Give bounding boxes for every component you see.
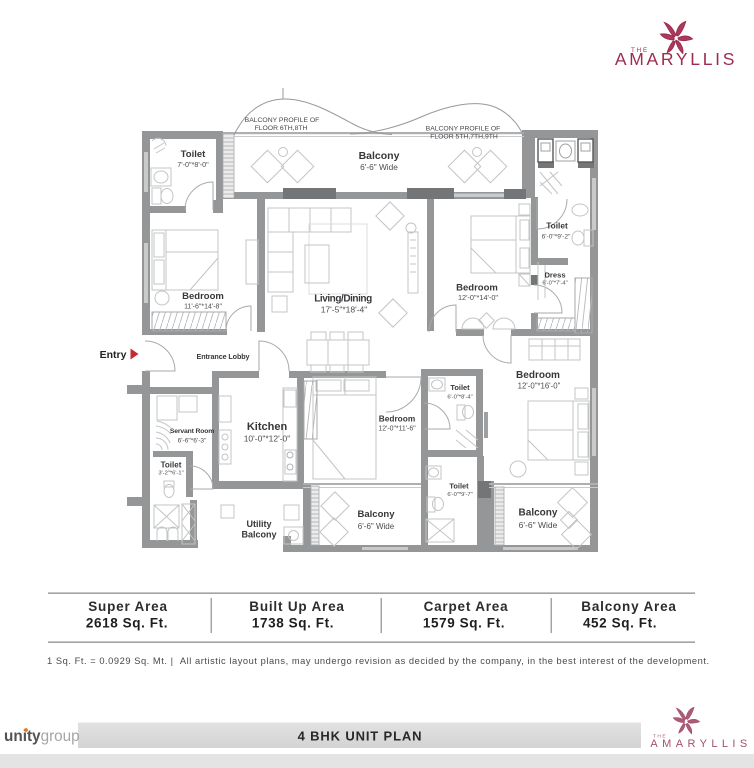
svg-text:Entry: Entry bbox=[100, 349, 127, 361]
svg-text:6'-0"*8'-4": 6'-0"*8'-4" bbox=[447, 395, 472, 401]
svg-text:Built Up Area: Built Up Area bbox=[249, 599, 344, 614]
svg-text:Living/Dining: Living/Dining bbox=[314, 294, 372, 305]
svg-text:12'-0"*11'-6": 12'-0"*11'-6" bbox=[378, 426, 416, 433]
svg-text:12'-0"*16'-0": 12'-0"*16'-0" bbox=[518, 382, 561, 391]
svg-text:6'-6"*6'-3": 6'-6"*6'-3" bbox=[178, 438, 207, 445]
svg-text:Balcony: Balcony bbox=[519, 508, 558, 519]
svg-text:Balcony Area: Balcony Area bbox=[581, 599, 676, 614]
svg-text:Balcony: Balcony bbox=[241, 530, 276, 540]
svg-text:Balcony: Balcony bbox=[358, 509, 396, 520]
svg-text:Toilet: Toilet bbox=[181, 149, 206, 160]
svg-text:Balcony: Balcony bbox=[359, 150, 400, 162]
svg-text:Kitchen: Kitchen bbox=[247, 421, 288, 433]
svg-text:Toilet: Toilet bbox=[546, 221, 568, 231]
svg-text:BALCONY PROFILE OF: BALCONY PROFILE OF bbox=[245, 117, 320, 124]
svg-text:1738 Sq. Ft.: 1738 Sq. Ft. bbox=[252, 616, 334, 631]
svg-text:452 Sq. Ft.: 452 Sq. Ft. bbox=[583, 616, 657, 631]
svg-text:Bedroom: Bedroom bbox=[456, 283, 498, 294]
svg-text:Toilet: Toilet bbox=[449, 482, 469, 491]
svg-text:6'-6" Wide: 6'-6" Wide bbox=[358, 522, 395, 531]
svg-text:6'-6" Wide: 6'-6" Wide bbox=[519, 520, 558, 530]
svg-text:6'-0"*9'-7": 6'-0"*9'-7" bbox=[447, 492, 472, 498]
svg-text:1579 Sq. Ft.: 1579 Sq. Ft. bbox=[423, 616, 505, 631]
svg-text:unitygroup: unitygroup bbox=[4, 728, 80, 745]
svg-text:AMARYLLIS: AMARYLLIS bbox=[650, 738, 751, 750]
svg-text:Entrance Lobby: Entrance Lobby bbox=[197, 352, 250, 361]
svg-text:6'-0"*7'-4": 6'-0"*7'-4" bbox=[542, 281, 567, 287]
svg-text:1 Sq. Ft. = 0.0929 Sq. Mt. |: 1 Sq. Ft. = 0.0929 Sq. Mt. | All artisti… bbox=[47, 656, 710, 666]
svg-text:Carpet Area: Carpet Area bbox=[424, 599, 509, 614]
svg-text:12'-0"*14'-0": 12'-0"*14'-0" bbox=[458, 293, 498, 302]
svg-text:Toilet: Toilet bbox=[450, 383, 470, 392]
svg-text:Bedroom: Bedroom bbox=[516, 370, 560, 381]
svg-text:Utility: Utility bbox=[246, 519, 271, 529]
svg-text:3'-2"*6'-1": 3'-2"*6'-1" bbox=[158, 471, 183, 477]
svg-text:Super Area: Super Area bbox=[88, 599, 168, 614]
svg-text:6'-0"*9'-2": 6'-0"*9'-2" bbox=[542, 234, 571, 241]
svg-text:Bedroom: Bedroom bbox=[182, 291, 224, 302]
svg-text:10'-0"*12'-0": 10'-0"*12'-0" bbox=[244, 434, 291, 444]
svg-text:Servant Room: Servant Room bbox=[170, 428, 214, 435]
svg-text:17'-5"*18'-4": 17'-5"*18'-4" bbox=[321, 305, 368, 315]
svg-text:Toilet: Toilet bbox=[161, 461, 182, 470]
svg-text:2618 Sq. Ft.: 2618 Sq. Ft. bbox=[86, 616, 168, 631]
svg-text:Bedroom: Bedroom bbox=[379, 414, 415, 424]
svg-text:7'-0"*8'-0": 7'-0"*8'-0" bbox=[177, 160, 209, 169]
svg-text:FLOOR 5TH,7TH,9TH: FLOOR 5TH,7TH,9TH bbox=[430, 134, 498, 141]
svg-text:BALCONY PROFILE OF: BALCONY PROFILE OF bbox=[426, 126, 501, 133]
svg-text:FLOOR 6TH,8TH: FLOOR 6TH,8TH bbox=[255, 125, 308, 132]
svg-text:4 BHK UNIT PLAN: 4 BHK UNIT PLAN bbox=[298, 729, 423, 744]
svg-text:AMARYLLIS: AMARYLLIS bbox=[615, 49, 737, 69]
svg-text:Dress: Dress bbox=[544, 271, 565, 280]
svg-text:11'-6"*14'-8": 11'-6"*14'-8" bbox=[184, 304, 222, 311]
svg-text:6'-6" Wide: 6'-6" Wide bbox=[360, 162, 398, 172]
